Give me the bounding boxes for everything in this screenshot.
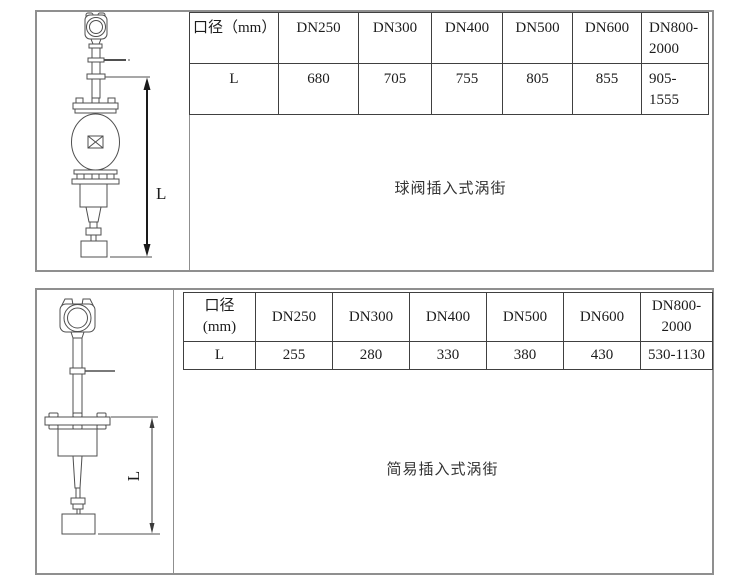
column-header-dn500: DN500 — [503, 13, 573, 64]
simple-insertion-section: L 口径 (mm) DN250 DN300 DN400 DN500 DN600 … — [35, 288, 714, 575]
column-header-dn400: DN400 — [410, 293, 487, 342]
column-header-dn300: DN300 — [359, 13, 432, 64]
dimension-table-simple-insertion: 口径 (mm) DN250 DN300 DN400 DN500 DN600 DN… — [183, 292, 713, 370]
upper-flange — [73, 98, 118, 113]
probe-assembly — [58, 429, 97, 534]
column-header-dn600: DN600 — [564, 293, 641, 342]
dimension-label-L: L — [124, 471, 143, 481]
simple-insertion-flowmeter-svg: L — [37, 290, 173, 573]
stem-and-handle — [87, 39, 130, 98]
ball-valve-flowmeter-svg: L — [37, 12, 189, 270]
column-header-dn300: DN300 — [333, 293, 410, 342]
column-header-dn600: DN600 — [573, 13, 642, 64]
mounting-flange — [45, 413, 110, 429]
column-header-dn800-2000: DN800- 2000 — [641, 293, 713, 342]
transmitter-head — [85, 13, 107, 39]
lower-flange — [72, 170, 119, 184]
caption-area: 球阀插入式涡街 — [189, 104, 712, 270]
column-header-dn250: DN250 — [256, 293, 333, 342]
caption-area: 简易插入式涡街 — [173, 364, 712, 573]
ball-valve-body — [72, 114, 120, 170]
column-header-diameter: 口径 (mm) — [184, 293, 256, 342]
dimension-label-L: L — [156, 184, 166, 203]
table-header-row: 口径 (mm) DN250 DN300 DN400 DN500 DN600 DN… — [184, 293, 713, 342]
simple-insertion-flowmeter-drawing: L — [37, 290, 173, 573]
probe-assembly — [80, 184, 107, 257]
dimension-arrow: L — [98, 417, 160, 534]
transmitter-head — [60, 299, 95, 332]
ball-valve-flowmeter-drawing: L — [37, 12, 189, 270]
dimension-table-ball-valve: 口径（mm） DN250 DN300 DN400 DN500 DN600 DN8… — [189, 12, 709, 115]
ball-valve-section: L 口径（mm） DN250 DN300 DN400 DN500 DN600 D… — [35, 10, 714, 272]
stem-and-handle — [70, 332, 115, 417]
section-caption: 简易插入式涡街 — [386, 458, 498, 479]
table-header-row: 口径（mm） DN250 DN300 DN400 DN500 DN600 DN8… — [190, 13, 709, 64]
section-caption: 球阀插入式涡街 — [394, 177, 506, 198]
column-header-dn800-2000: DN800- 2000 — [642, 13, 709, 64]
column-header-dn250: DN250 — [279, 13, 359, 64]
column-header-dn400: DN400 — [432, 13, 503, 64]
column-header-diameter: 口径（mm） — [190, 13, 279, 64]
column-header-dn500: DN500 — [487, 293, 564, 342]
